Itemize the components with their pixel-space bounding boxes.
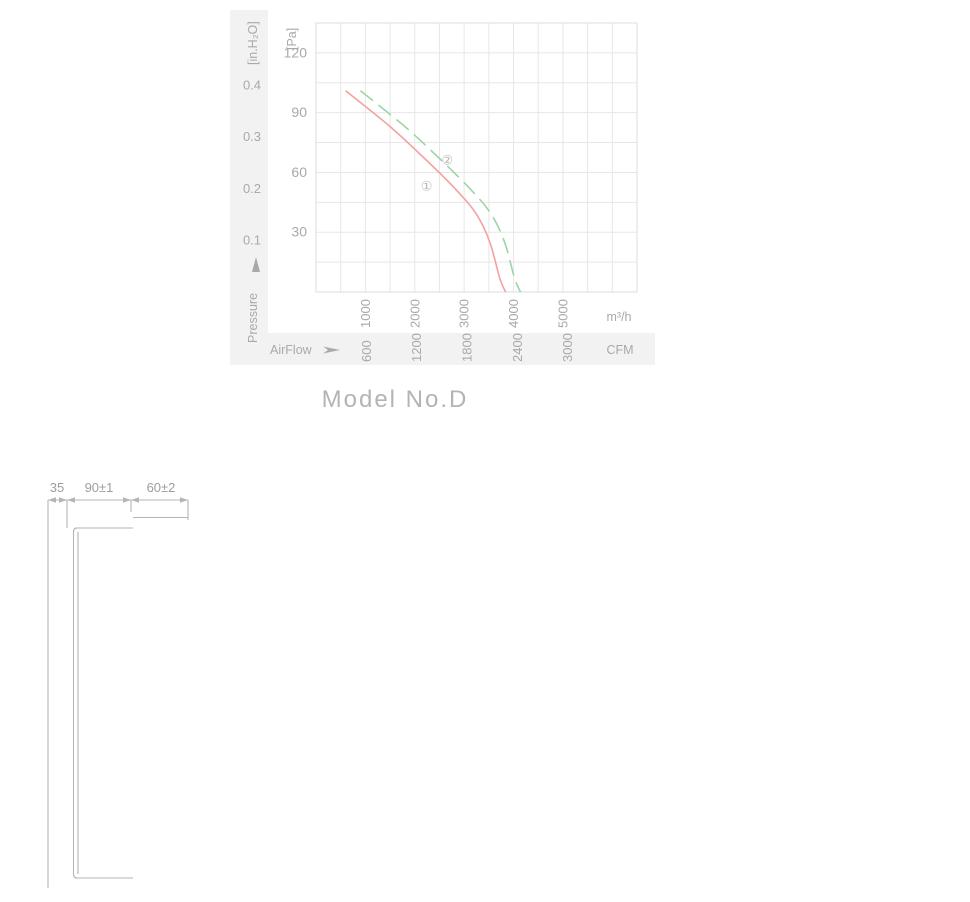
dimension-arrow	[48, 497, 56, 503]
cfm-tick-label: 1800	[460, 333, 475, 362]
m3h-tick-label: 2000	[407, 299, 422, 328]
airflow-label: AirFlow	[270, 343, 313, 357]
dimension-arrow	[59, 497, 67, 503]
plot-frame	[316, 23, 637, 292]
m3h-tick-label: 1000	[358, 299, 373, 328]
dim-35: 35	[50, 480, 64, 495]
performance-chart-svg: [in.H₂O][Pa]1209060300.40.30.20.1Pressur…	[230, 10, 655, 365]
dimension-arrow	[131, 497, 139, 503]
cfm-tick-label: 3000	[560, 333, 575, 362]
dimension-arrow	[180, 497, 188, 503]
m3h-tick-label: 3000	[457, 299, 472, 328]
m3h-unit-label: m³/h	[607, 310, 632, 324]
cfm-unit-label: CFM	[606, 343, 633, 357]
front-view-svg	[418, 466, 970, 902]
dimension-arrow	[123, 497, 131, 503]
cfm-tick-label: 600	[359, 340, 374, 362]
dim-60: 60±2	[147, 480, 176, 495]
m3h-tick-label: 5000	[555, 299, 570, 328]
outline	[74, 874, 78, 878]
performance-chart: [in.H₂O][Pa]1209060300.40.30.20.1Pressur…	[230, 10, 655, 365]
pa-tick-label: 60	[291, 164, 307, 180]
inh2o-tick-label: 0.1	[243, 233, 261, 248]
front-view-drawing	[418, 466, 970, 902]
dim-90: 90±1	[85, 480, 114, 495]
curve-2-label: ②	[442, 152, 454, 167]
inh2o-tick-label: 0.2	[243, 181, 261, 196]
m3h-tick-label: 4000	[506, 299, 521, 328]
side-view-svg: 3590±160±2	[15, 470, 310, 902]
inh2o-unit-label: [in.H₂O]	[246, 21, 260, 65]
cfm-tick-label: 2400	[510, 333, 525, 362]
inh2o-tick-label: 0.4	[243, 77, 261, 92]
curve-1-label: ①	[421, 178, 433, 193]
pa-tick-label: 120	[284, 44, 308, 60]
pressure-axis-label: Pressure	[246, 293, 260, 343]
inh2o-tick-label: 0.3	[243, 129, 261, 144]
side-view-drawing: 3590±160±2	[15, 470, 310, 902]
pa-tick-label: 90	[291, 104, 307, 120]
dimension-arrow	[67, 497, 75, 503]
model-label: Model No.D	[230, 386, 560, 414]
catalog-page: [in.H₂O][Pa]1209060300.40.30.20.1Pressur…	[0, 0, 970, 902]
outline	[74, 528, 78, 532]
pa-tick-label: 30	[291, 224, 307, 240]
cfm-tick-label: 1200	[409, 333, 424, 362]
